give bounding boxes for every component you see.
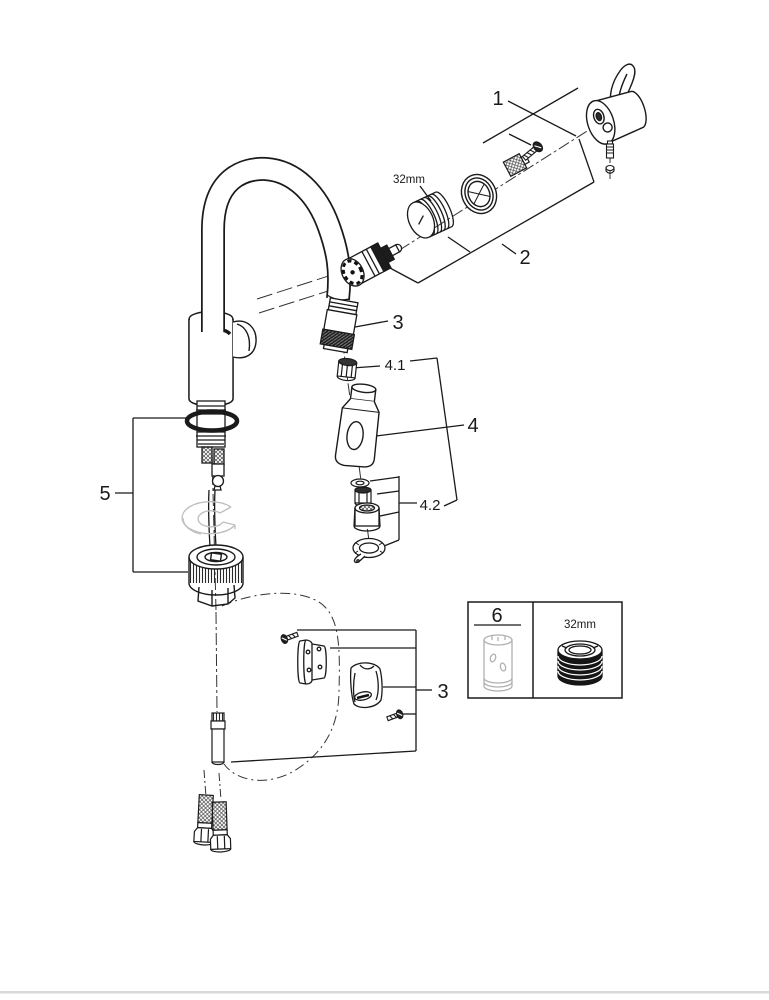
supply-hose-2	[209, 802, 231, 853]
callout-label-2: 2	[519, 247, 530, 269]
callout-label-4: 4	[467, 415, 478, 437]
cartridge-nut-32mm	[402, 190, 457, 243]
handle-socket-dome	[233, 321, 256, 358]
hose-connector	[211, 713, 225, 765]
callout-label-3-spout: 3	[392, 312, 403, 334]
parts-diagram-page: 1 2 3 4.1 4 4.2 5 3 6 32mm 32mm	[0, 0, 769, 1000]
spout-coupling	[320, 298, 360, 354]
callout-label-4-2: 4.2	[420, 497, 441, 514]
callout-label-3-holder: 3	[437, 681, 448, 703]
mousseur-cup	[354, 503, 380, 531]
cartridge	[336, 234, 407, 290]
page-bottom-rule	[0, 991, 769, 994]
callout-label-1: 1	[492, 88, 503, 110]
size-label-cartridge-nut: 32mm	[393, 174, 425, 186]
holder-screw-2	[386, 709, 404, 723]
handle-set-screw	[607, 141, 614, 158]
holder-screw-1	[280, 630, 299, 644]
spray-head	[334, 382, 383, 469]
hose-path-curve	[222, 593, 339, 780]
shank-assembly	[187, 401, 237, 547]
exploded-diagram: 1 2 3 4.1 4 4.2 5 3 6 32mm 32mm	[0, 0, 769, 1000]
callout-label-4-1: 4.1	[385, 357, 406, 374]
holder-shell	[351, 663, 382, 708]
spray-plate	[353, 539, 385, 563]
callout-label-5: 5	[99, 483, 110, 505]
hose-end-fitting	[212, 464, 224, 476]
legend-ring-nut-32mm	[558, 641, 602, 685]
handle-screw	[521, 140, 545, 163]
holder-bracket	[298, 640, 327, 684]
callout-label-6: 6	[491, 605, 502, 627]
trim-ring	[455, 169, 503, 220]
handle-cap	[581, 87, 651, 148]
size-label-legend-nut: 32mm	[564, 619, 596, 631]
pullout-hose	[209, 490, 216, 547]
spray-washer	[351, 479, 369, 487]
mounting-nut	[189, 545, 243, 606]
